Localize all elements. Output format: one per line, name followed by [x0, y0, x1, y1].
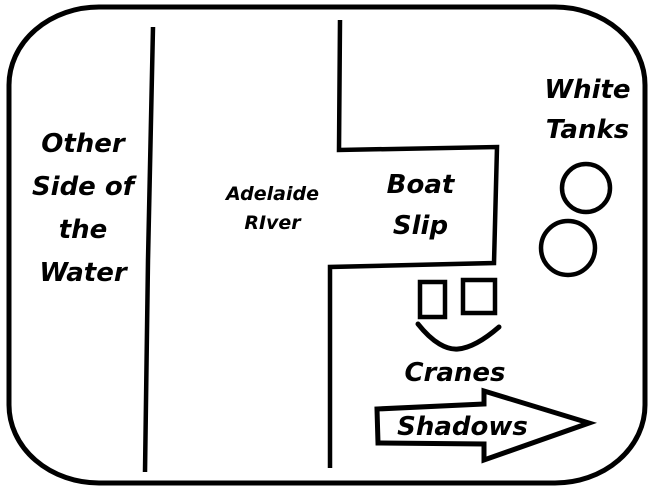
label-line: RIver — [210, 209, 335, 238]
tank-circle-bottom — [541, 221, 595, 275]
crane-pointer-curve — [418, 324, 499, 349]
tank-circle-top — [562, 164, 610, 212]
label-cranes: Cranes — [393, 354, 517, 392]
label-adelaide-river: Adelaide RIver — [210, 180, 335, 238]
label-other-side-of-water: Other Side of the Water — [18, 123, 148, 295]
label-boat-slip: Boat Slip — [368, 165, 473, 247]
crane-square-right — [463, 280, 495, 313]
label-line: Tanks — [530, 110, 645, 150]
label-line: Side of — [18, 166, 148, 209]
label-line: the — [18, 209, 148, 252]
label-line: Boat — [368, 165, 473, 206]
label-line: White — [530, 70, 645, 110]
label-line: Slip — [368, 206, 473, 247]
label-line: Adelaide — [210, 180, 335, 209]
crane-square-left — [420, 282, 445, 317]
label-line: Water — [18, 252, 148, 295]
sketch-map: Other Side of the Water Adelaide RIver B… — [0, 0, 653, 500]
label-shadows: Shadows — [390, 408, 535, 446]
label-line: Other — [18, 123, 148, 166]
label-white-tanks: White Tanks — [530, 70, 645, 150]
